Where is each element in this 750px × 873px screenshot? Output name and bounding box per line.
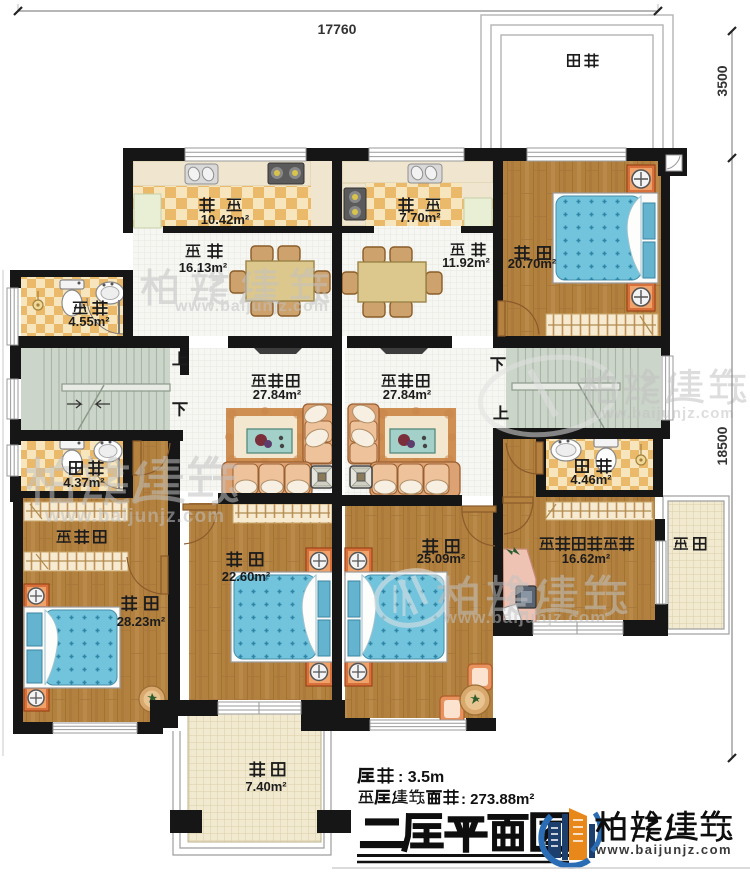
svg-text:www.baijunjz.com: www.baijunjz.com [443, 608, 607, 627]
svg-text:17760: 17760 [318, 21, 357, 37]
svg-text:16.62m²: 16.62m² [562, 551, 611, 566]
svg-text:28.23m²: 28.23m² [117, 614, 166, 629]
svg-text:7.40m²: 7.40m² [245, 779, 287, 794]
svg-text:4.46m²: 4.46m² [570, 472, 612, 487]
svg-text:16.13m²: 16.13m² [179, 260, 228, 275]
svg-text:: 3.5m: : 3.5m [398, 769, 444, 786]
svg-text:22.60m²: 22.60m² [222, 569, 271, 584]
svg-text:4.37m²: 4.37m² [63, 475, 105, 490]
svg-text:20.70m²: 20.70m² [508, 256, 557, 271]
svg-text:www.baijunjz.com: www.baijunjz.com [588, 405, 734, 422]
svg-text:10.42m²: 10.42m² [201, 212, 250, 227]
svg-text:11.92m²: 11.92m² [442, 255, 490, 270]
svg-text:: 273.88m²: : 273.88m² [461, 791, 534, 808]
svg-text:4.55m²: 4.55m² [68, 314, 110, 329]
svg-text:25.09m²: 25.09m² [417, 551, 466, 566]
svg-text:18500: 18500 [714, 426, 730, 465]
svg-text:www.baijunjz.com: www.baijunjz.com [174, 298, 329, 315]
svg-text:www.baijunjz.com: www.baijunjz.com [595, 842, 732, 857]
svg-text:27.84m²: 27.84m² [253, 387, 302, 402]
svg-text:3500: 3500 [714, 65, 730, 96]
svg-text:www.baijunjz.com: www.baijunjz.com [44, 506, 225, 527]
svg-text:27.84m²: 27.84m² [383, 387, 432, 402]
svg-text:7.70m²: 7.70m² [399, 210, 441, 225]
